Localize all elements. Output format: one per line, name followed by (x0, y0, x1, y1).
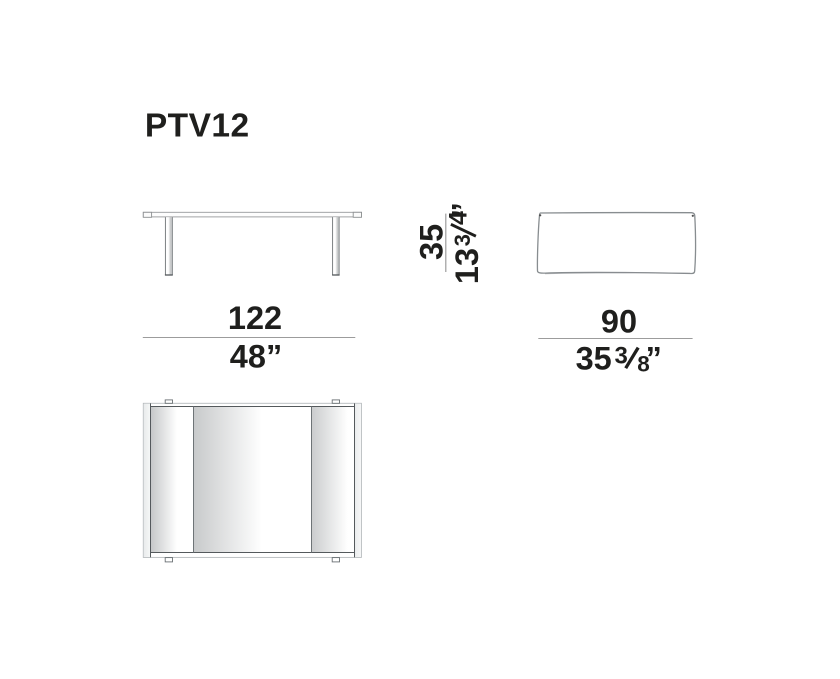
svg-text:35: 35 (414, 224, 450, 260)
svg-text:13: 13 (449, 248, 485, 284)
svg-text:122: 122 (228, 300, 282, 336)
svg-text:90: 90 (601, 304, 637, 340)
svg-text:”: ” (445, 202, 481, 218)
svg-text:35: 35 (576, 341, 612, 377)
svg-text:3: 3 (450, 234, 475, 246)
svg-text:48”: 48” (230, 339, 282, 375)
svg-text:PTV12: PTV12 (145, 108, 250, 145)
svg-text:”: ” (646, 341, 662, 377)
